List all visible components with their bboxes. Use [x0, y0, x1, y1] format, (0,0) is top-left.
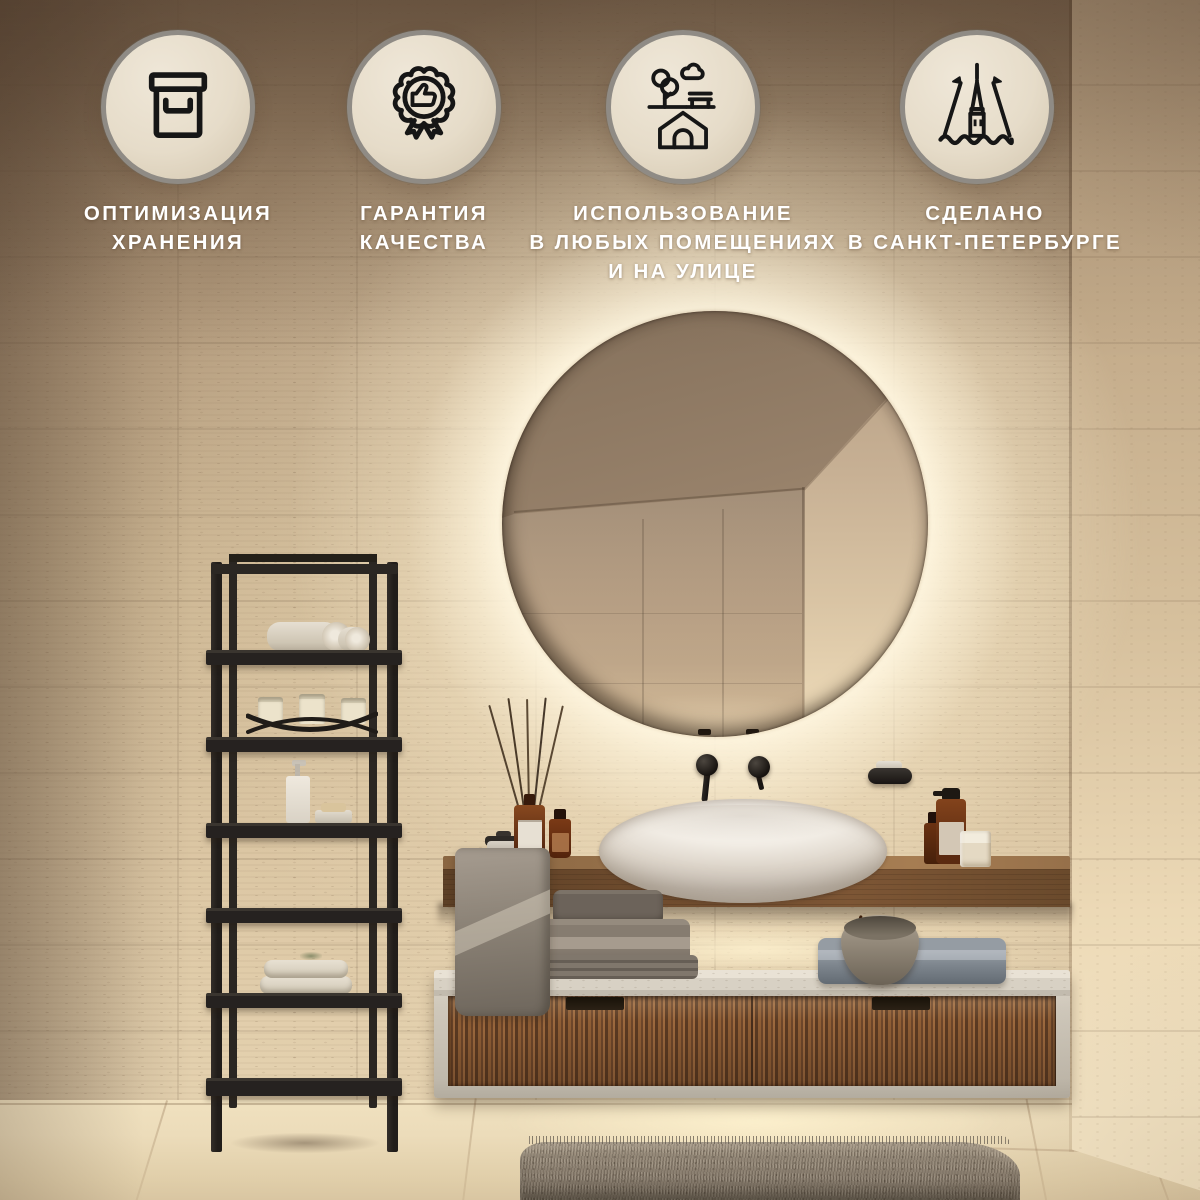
decor-sprig	[300, 952, 322, 960]
mirror-reflection-grout	[512, 613, 802, 614]
shelf-board	[206, 908, 402, 923]
side-wall	[1072, 0, 1200, 1200]
shelf-top-bar	[229, 554, 377, 562]
vessel-sink	[599, 799, 887, 903]
badge-storage	[101, 30, 255, 184]
cabinet-drawer-divider	[751, 996, 753, 1086]
badge-quality	[347, 30, 501, 184]
folded-white-towels	[260, 956, 352, 994]
mirror-reflection-crease	[514, 488, 804, 513]
shelf-board	[206, 993, 402, 1008]
faucet-handle-escutcheon	[748, 756, 770, 778]
faucet-spout-escutcheon	[696, 754, 718, 776]
shelf-board	[206, 1078, 402, 1096]
rolled-towel-end	[345, 627, 370, 652]
mirror-reflection-corner-line	[802, 487, 805, 737]
badge-caption-made-in-spb: СДЕЛАНО В САНКТ-ПЕТЕРБУРГЕ	[795, 199, 1175, 257]
indoor-outdoor-icon	[635, 59, 731, 155]
product-scene: ОПТИМИЗАЦИЯ ХРАНЕНИЯ ГАРАНТИЯ КАЧЕСТВА И…	[0, 0, 1200, 1200]
storage-box-icon	[131, 60, 225, 154]
caption-line: СДЕЛАНО	[795, 199, 1175, 228]
round-backlit-mirror	[502, 311, 928, 737]
quality-medal-icon	[376, 59, 472, 155]
shelf-board	[206, 650, 402, 665]
mirror-reflection-grout	[642, 519, 644, 737]
diffuser-reeds	[514, 697, 548, 809]
mirror-clip	[746, 729, 759, 735]
saint-petersburg-spire-icon	[929, 59, 1025, 155]
soap-dispenser	[286, 776, 310, 823]
glass-candle	[960, 831, 991, 867]
caption-line: И НА УЛИЦЕ	[493, 257, 873, 286]
mirror-reflection-grout	[722, 509, 724, 737]
shelf-board	[206, 737, 402, 752]
mirror-reflection-crease	[803, 386, 900, 491]
diffuser-label	[518, 820, 542, 851]
mirror-clip	[698, 729, 711, 735]
cabinet-drawer-handle	[872, 997, 930, 1010]
pump-bottle-spout	[933, 791, 945, 796]
cabinet-drawer-handle	[566, 997, 624, 1010]
shelf-top-bar	[211, 564, 398, 574]
shelf-floor-shadow	[198, 1128, 412, 1158]
wall-soap-dish	[868, 768, 912, 784]
mirror-reflection-corner-wall	[502, 311, 928, 737]
folded-towel	[260, 976, 352, 994]
amber-bottle-label	[552, 833, 569, 852]
mirror-inner-glow	[542, 641, 888, 737]
folded-towel	[264, 960, 348, 978]
soap-bar	[321, 803, 346, 812]
reed-stick	[526, 699, 530, 809]
badge-indoor-outdoor	[606, 30, 760, 184]
mirror-reflection-ceiling	[502, 311, 928, 737]
shag-rug	[520, 1142, 1020, 1200]
reed-stick	[533, 698, 547, 810]
caption-line: В САНКТ-ПЕТЕРБУРГЕ	[795, 228, 1175, 257]
draped-towel	[455, 848, 550, 1016]
shelf-board	[206, 823, 402, 838]
badge-made-in-spb	[900, 30, 1054, 184]
